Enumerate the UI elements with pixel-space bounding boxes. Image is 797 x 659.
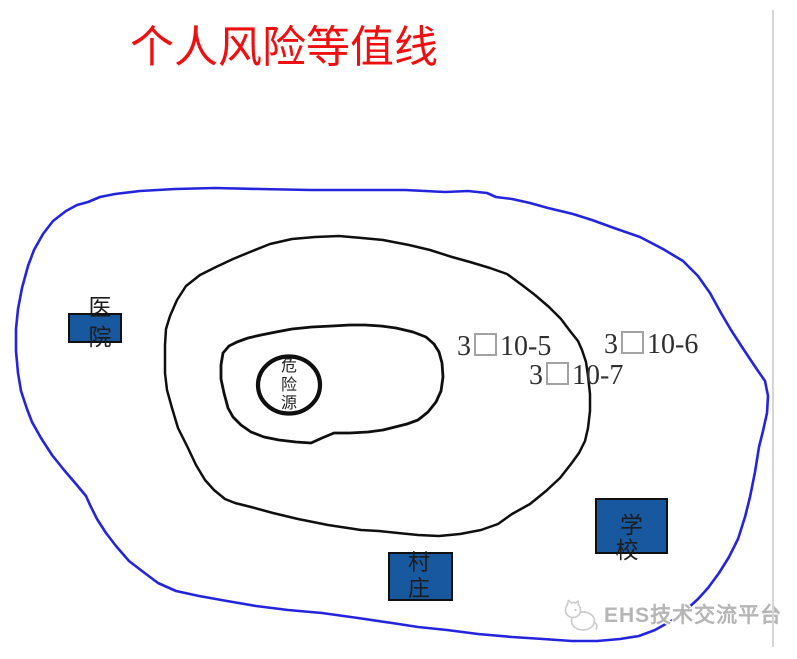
risk-label-suffix: 10-5 — [500, 331, 551, 362]
watermark-brand: EHS技术交流平台 — [604, 604, 782, 628]
screenshot-root: { "title": { "text": "个人风险等值线" }, "risk_… — [0, 0, 797, 659]
page-divider-line — [772, 10, 774, 647]
risk-label-1e-5: 310-5 — [457, 332, 551, 362]
missing-glyph-box — [474, 333, 497, 356]
risk-label-prefix: 3 — [604, 329, 618, 360]
page-title: 个人风险等值线 — [130, 24, 438, 72]
risk-label-suffix: 10-7 — [572, 360, 623, 391]
missing-glyph-box — [546, 362, 569, 385]
risk-label-prefix: 3 — [457, 331, 471, 362]
hospital-label: 医院 — [87, 293, 113, 352]
missing-glyph-box — [621, 331, 644, 354]
village-label: 村庄 — [406, 550, 432, 601]
hazard-source-label: 危险源 — [276, 358, 302, 414]
ehs-cat-logo-icon — [561, 598, 601, 636]
school-label: 学校 — [597, 513, 666, 563]
middle-black-contour — [165, 236, 590, 536]
risk-label-1e-6: 310-6 — [604, 330, 698, 360]
risk-label-1e-7: 310-7 — [529, 361, 623, 391]
risk-label-prefix: 3 — [529, 360, 543, 391]
risk-label-suffix: 10-6 — [647, 329, 698, 360]
inner-black-contour — [221, 325, 443, 443]
